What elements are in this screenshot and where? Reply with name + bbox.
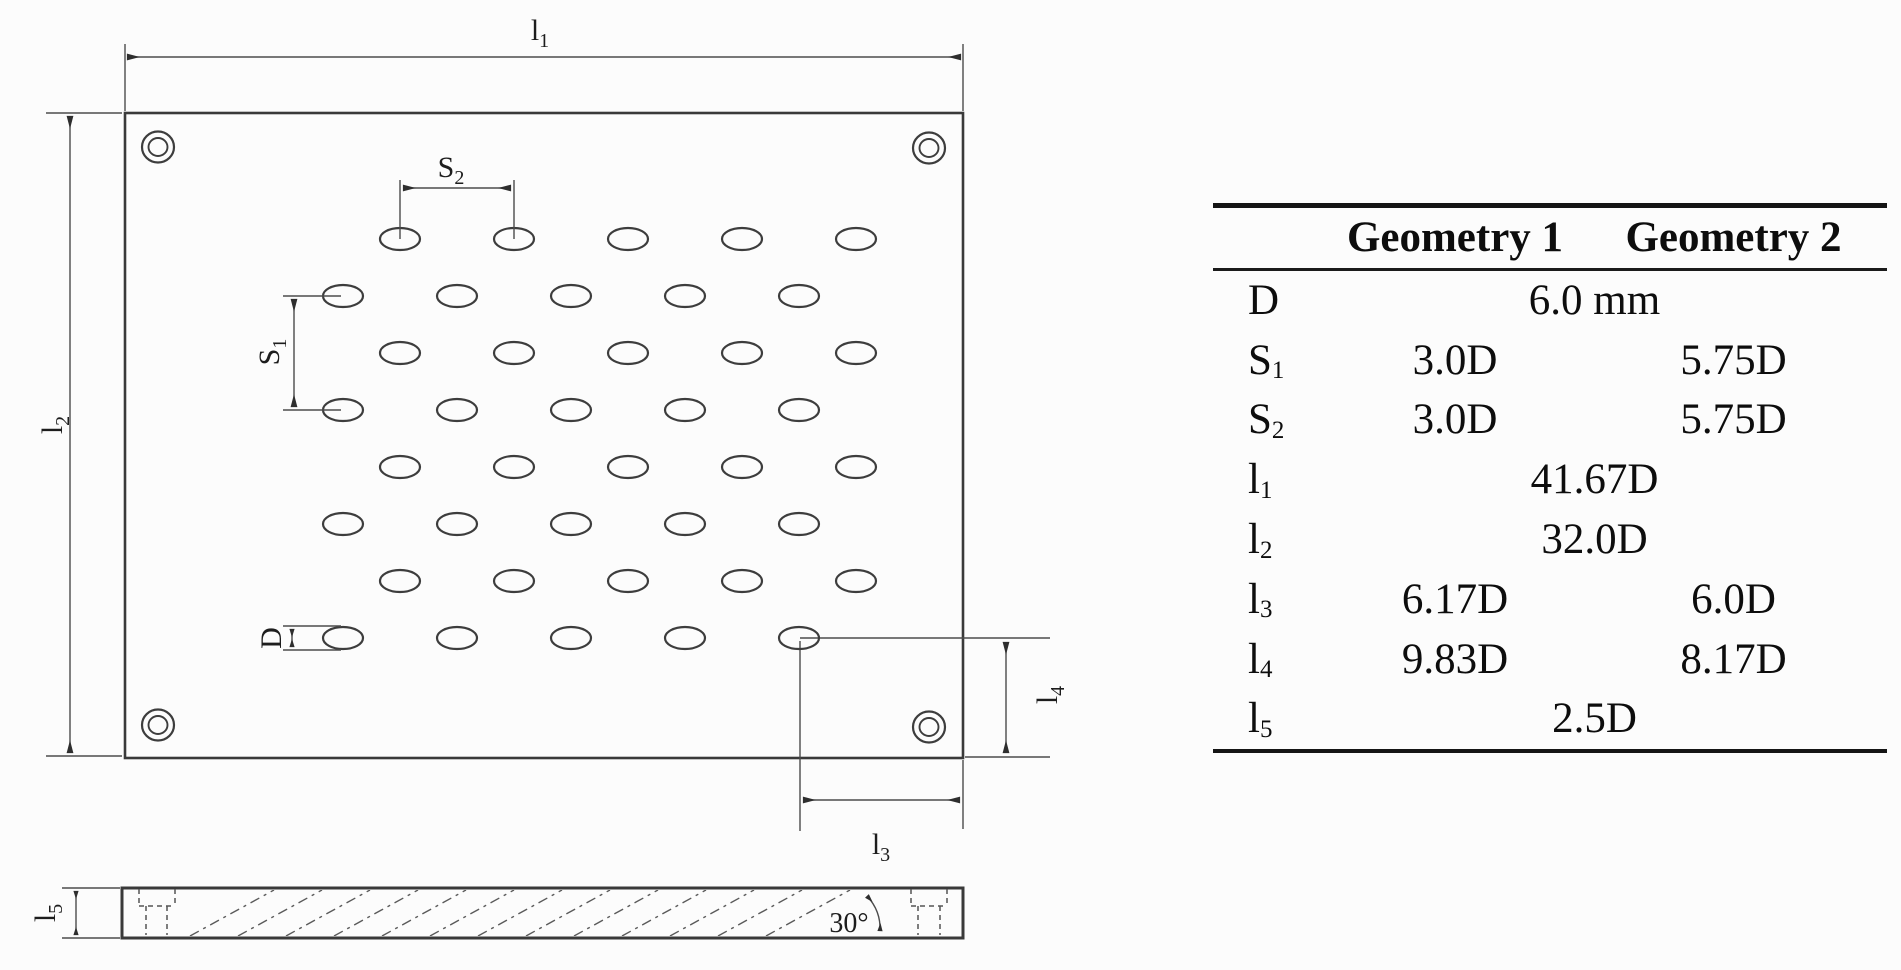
table-row: l3 6.17D 6.0D (1213, 569, 1887, 629)
table-row: l1 41.67D (1213, 450, 1887, 510)
l3-label: l3 (872, 828, 890, 866)
table-row: D 6.0 mm (1213, 271, 1887, 331)
dim-l1: l1 (125, 14, 963, 111)
table-row: S2 3.0D 5.75D (1213, 390, 1887, 450)
row-value-g2: 5.75D (1580, 339, 1887, 382)
row-value-g2: 6.0D (1580, 578, 1887, 621)
row-label: l2 (1213, 518, 1330, 561)
row-label: l5 (1213, 697, 1330, 740)
row-label: l3 (1213, 578, 1330, 621)
plate-outline (125, 113, 963, 758)
row-value-g2: 5.75D (1580, 398, 1887, 441)
table-bottom-border (1213, 749, 1887, 754)
row-value: 32.0D (1330, 518, 1887, 561)
row-value: 2.5D (1330, 697, 1887, 740)
s1-label: S1 (253, 339, 291, 366)
l5-label: l5 (29, 904, 67, 922)
row-value-g1: 9.83D (1330, 638, 1580, 681)
row-label: l1 (1213, 458, 1330, 501)
dim-l5: l5 (29, 888, 120, 938)
dim-angle-30: 30° (829, 896, 880, 939)
d-label: D (255, 627, 288, 649)
right-counterbore (911, 889, 947, 935)
row-value-g1: 3.0D (1330, 398, 1580, 441)
left-counterbore (139, 889, 175, 935)
corner-mounting-holes (142, 132, 945, 743)
header-geometry-2: Geometry 2 (1580, 216, 1887, 259)
row-label: l4 (1213, 638, 1330, 681)
table-header-row: Geometry 1 Geometry 2 (1213, 208, 1887, 269)
row-value-g1: 3.0D (1330, 339, 1580, 382)
dim-s2: S2 (400, 151, 514, 239)
table-row: S1 3.0D 5.75D (1213, 330, 1887, 390)
angle-label: 30° (829, 908, 868, 939)
table-row: l2 32.0D (1213, 510, 1887, 570)
l4-label: l4 (1031, 686, 1069, 704)
table-row: l4 9.83D 8.17D (1213, 629, 1887, 689)
dim-s1: S1 (253, 296, 341, 410)
header-geometry-1: Geometry 1 (1330, 216, 1580, 259)
row-value-g2: 8.17D (1580, 638, 1887, 681)
hole-array (323, 228, 876, 649)
table-row: l5 2.5D (1213, 689, 1887, 749)
dim-l3: l3 (803, 760, 963, 866)
row-label: S1 (1213, 339, 1330, 382)
row-label: S2 (1213, 398, 1330, 441)
inclined-hole-hatching (190, 890, 850, 936)
s2-label: S2 (438, 151, 465, 189)
geometry-table: Geometry 1 Geometry 2 D 6.0 mm S1 3.0D 5… (1213, 203, 1887, 753)
row-value: 41.67D (1330, 458, 1887, 501)
row-value-g1: 6.17D (1330, 578, 1580, 621)
dim-l4: l4 (965, 642, 1069, 757)
l2-label: l2 (36, 416, 74, 434)
row-value: 6.0 mm (1330, 279, 1887, 322)
row-label: D (1213, 279, 1330, 322)
dim-l2: l2 (36, 113, 122, 756)
plate-front-view (125, 113, 1050, 831)
l1-label: l1 (531, 14, 549, 52)
